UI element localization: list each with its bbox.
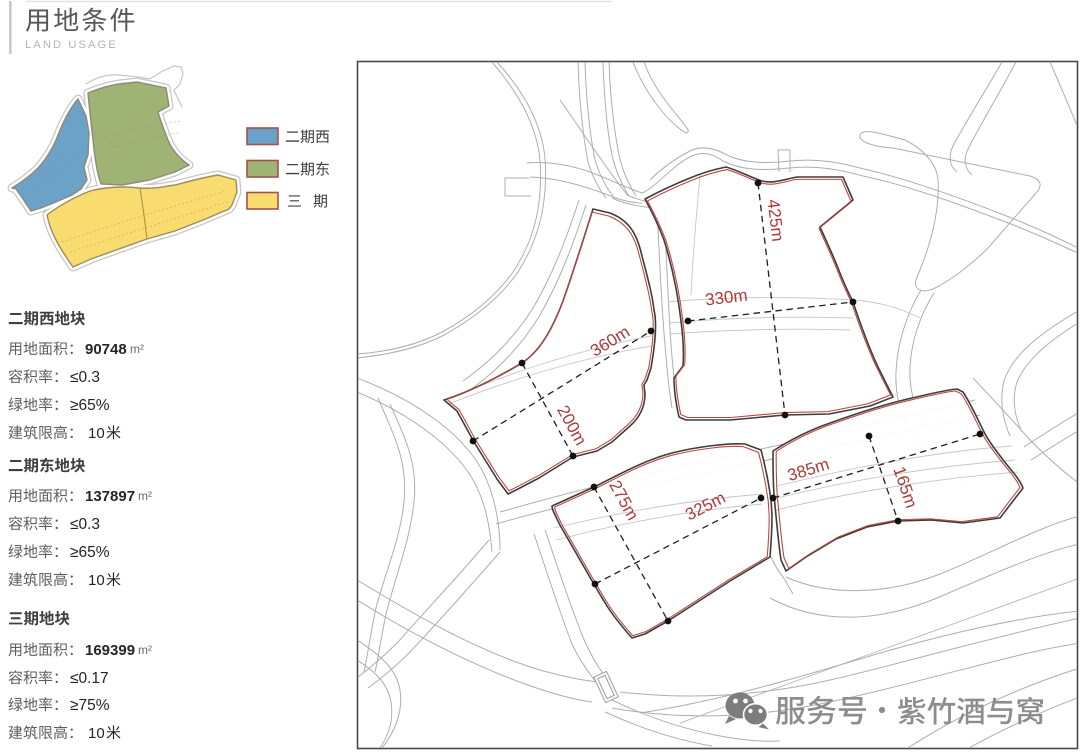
svg-text:≤0.3: ≤0.3 [70,369,100,386]
svg-text:10: 10 [88,425,105,442]
svg-text:169399: 169399 [85,642,135,659]
svg-text:≥65%: ≥65% [70,544,110,561]
svg-text:137897: 137897 [85,488,135,505]
svg-text:≥65%: ≥65% [70,397,110,414]
svg-text:10: 10 [88,725,105,742]
svg-text:10: 10 [88,572,105,589]
svg-text:≥75%: ≥75% [70,697,110,714]
svg-text:≤0.3: ≤0.3 [70,516,100,533]
svg-text:90748: 90748 [85,341,127,358]
svg-text:LAND USAGE: LAND USAGE [25,39,118,51]
svg-text:m²: m² [138,489,152,503]
svg-text:≤0.17: ≤0.17 [70,670,109,687]
svg-text:m²: m² [138,643,152,657]
svg-text:m²: m² [130,342,144,356]
